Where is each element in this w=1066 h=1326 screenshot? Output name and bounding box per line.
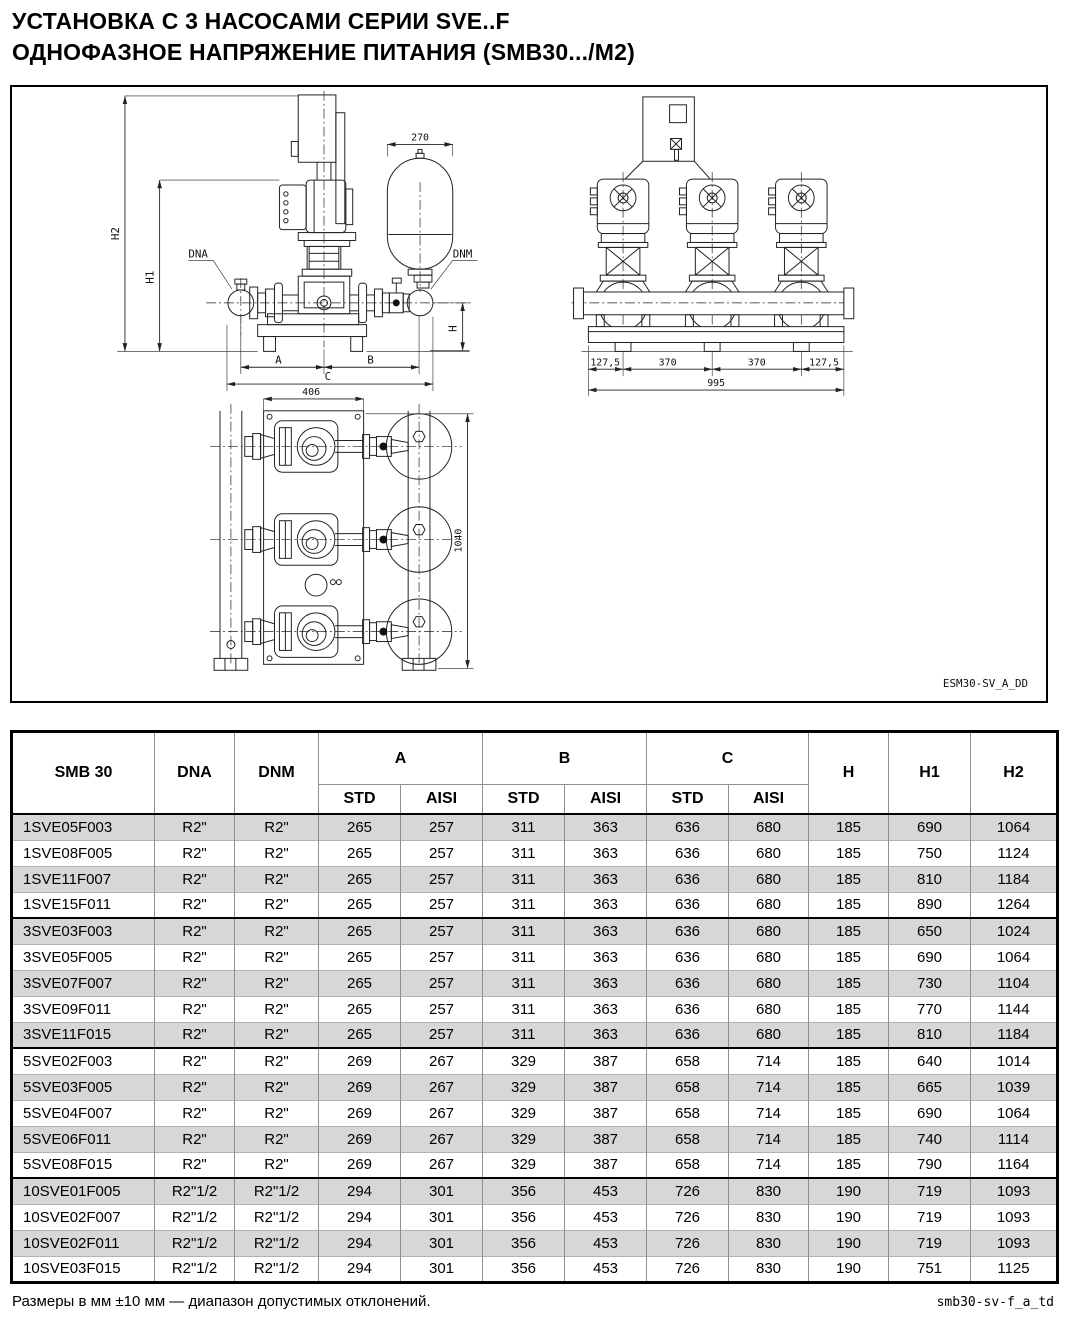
spec-cell: R2" bbox=[155, 918, 235, 944]
spec-cell: 257 bbox=[401, 996, 483, 1022]
spec-cell: R2" bbox=[235, 1126, 319, 1152]
spec-cell: 363 bbox=[565, 892, 647, 918]
spec-cell: R2"1/2 bbox=[155, 1178, 235, 1204]
col-header-h: H bbox=[809, 732, 889, 815]
spec-cell: 257 bbox=[401, 944, 483, 970]
spec-cell: 257 bbox=[401, 840, 483, 866]
page-title-line2: ОДНОФАЗНОЕ НАПРЯЖЕНИЕ ПИТАНИЯ (SMB30.../… bbox=[12, 37, 635, 68]
spec-cell: 387 bbox=[565, 1074, 647, 1100]
spec-cell: 680 bbox=[729, 892, 809, 918]
spec-cell: 658 bbox=[647, 1048, 729, 1074]
spec-cell: 185 bbox=[809, 1126, 889, 1152]
spec-cell: 1125 bbox=[971, 1256, 1058, 1282]
model-cell: 3SVE05F005 bbox=[12, 944, 155, 970]
dim-pitch1: 370 bbox=[659, 357, 677, 368]
spec-cell: 363 bbox=[565, 944, 647, 970]
spec-cell: 680 bbox=[729, 814, 809, 840]
control-box bbox=[291, 95, 344, 224]
spec-cell: 453 bbox=[565, 1178, 647, 1204]
pump-plan-2 bbox=[210, 514, 462, 565]
spec-cell: 680 bbox=[729, 918, 809, 944]
spec-cell: R2" bbox=[155, 892, 235, 918]
spec-cell: 1164 bbox=[971, 1152, 1058, 1178]
spec-cell: R2" bbox=[235, 840, 319, 866]
spec-cell: 329 bbox=[483, 1074, 565, 1100]
col-header-c-std: STD bbox=[647, 785, 729, 815]
spec-cell: 329 bbox=[483, 1126, 565, 1152]
spec-cell: 265 bbox=[319, 918, 401, 944]
dim-a-text: A bbox=[275, 353, 282, 366]
spec-cell: 294 bbox=[319, 1230, 401, 1256]
spec-cell: 329 bbox=[483, 1100, 565, 1126]
spec-cell: 269 bbox=[319, 1048, 401, 1074]
dim-c-text: C bbox=[325, 370, 332, 383]
spec-cell: 185 bbox=[809, 840, 889, 866]
spec-cell: 453 bbox=[565, 1230, 647, 1256]
spec-cell: R2"1/2 bbox=[235, 1204, 319, 1230]
spec-cell: 636 bbox=[647, 866, 729, 892]
col-header-c: C bbox=[647, 732, 809, 785]
spec-cell: R2" bbox=[235, 1152, 319, 1178]
spec-cell: 265 bbox=[319, 944, 401, 970]
table-row: 5SVE04F007R2"R2"269267329387658714185690… bbox=[12, 1100, 1058, 1126]
dim-side-total: 995 bbox=[588, 378, 843, 390]
table-row: 10SVE02F011R2"1/2R2"1/229430135645372683… bbox=[12, 1230, 1058, 1256]
spec-cell: R2" bbox=[155, 866, 235, 892]
spec-cell: 257 bbox=[401, 918, 483, 944]
spec-cell: 311 bbox=[483, 1022, 565, 1048]
spec-cell: 658 bbox=[647, 1100, 729, 1126]
dim-406: 406 bbox=[302, 387, 320, 398]
spec-cell: 190 bbox=[809, 1204, 889, 1230]
spec-cell: 265 bbox=[319, 866, 401, 892]
spec-cell: 265 bbox=[319, 892, 401, 918]
table-row: 3SVE11F015R2"R2"265257311363636680185810… bbox=[12, 1022, 1058, 1048]
table-row: 5SVE08F015R2"R2"269267329387658714185790… bbox=[12, 1152, 1058, 1178]
spec-cell: 1264 bbox=[971, 892, 1058, 918]
spec-cell: 269 bbox=[319, 1074, 401, 1100]
spec-cell: R2" bbox=[235, 918, 319, 944]
spec-cell: 185 bbox=[809, 1022, 889, 1048]
spec-cell: 267 bbox=[401, 1126, 483, 1152]
spec-cell: R2" bbox=[155, 1126, 235, 1152]
model-cell: 10SVE02F011 bbox=[12, 1230, 155, 1256]
dim-h: H bbox=[430, 303, 470, 351]
spec-cell: 680 bbox=[729, 866, 809, 892]
spec-cell: 726 bbox=[647, 1204, 729, 1230]
col-header-dnm: DNM bbox=[235, 732, 319, 815]
spec-cell: 363 bbox=[565, 840, 647, 866]
datasheet-page: УСТАНОВКА С 3 НАСОСАМИ СЕРИИ SVE..F ОДНО… bbox=[0, 0, 1066, 1326]
col-header-dna: DNA bbox=[155, 732, 235, 815]
col-header-b: B bbox=[483, 732, 647, 785]
spec-cell: 269 bbox=[319, 1152, 401, 1178]
page-title: УСТАНОВКА С 3 НАСОСАМИ СЕРИИ SVE..F ОДНО… bbox=[12, 6, 635, 68]
col-header-a-std: STD bbox=[319, 785, 401, 815]
table-row: 3SVE07F007R2"R2"265257311363636680185730… bbox=[12, 970, 1058, 996]
spec-cell: R2" bbox=[155, 970, 235, 996]
spec-cell: 1184 bbox=[971, 866, 1058, 892]
table-row: 5SVE03F005R2"R2"269267329387658714185665… bbox=[12, 1074, 1058, 1100]
spec-cell: 690 bbox=[889, 1100, 971, 1126]
spec-cell: 265 bbox=[319, 996, 401, 1022]
spec-cell: R2" bbox=[235, 1100, 319, 1126]
spec-cell: R2" bbox=[155, 840, 235, 866]
spec-cell: 1104 bbox=[971, 970, 1058, 996]
spec-cell: 751 bbox=[889, 1256, 971, 1282]
spec-cell: 301 bbox=[401, 1178, 483, 1204]
spec-cell: 1093 bbox=[971, 1230, 1058, 1256]
spec-cell: 311 bbox=[483, 866, 565, 892]
model-cell: 10SVE01F005 bbox=[12, 1178, 155, 1204]
model-cell: 1SVE15F011 bbox=[12, 892, 155, 918]
spec-cell: 1064 bbox=[971, 944, 1058, 970]
spec-cell: 636 bbox=[647, 918, 729, 944]
spec-cell: 265 bbox=[319, 814, 401, 840]
spec-cell: 294 bbox=[319, 1178, 401, 1204]
spec-cell: 830 bbox=[729, 1204, 809, 1230]
spec-cell: 185 bbox=[809, 1074, 889, 1100]
spec-cell: 830 bbox=[729, 1256, 809, 1282]
table-row: 3SVE03F003R2"R2"265257311363636680185650… bbox=[12, 918, 1058, 944]
spec-cell: 387 bbox=[565, 1048, 647, 1074]
spec-cell: 356 bbox=[483, 1204, 565, 1230]
spec-cell: 1093 bbox=[971, 1204, 1058, 1230]
spec-cell: 267 bbox=[401, 1152, 483, 1178]
spec-cell: R2"1/2 bbox=[235, 1256, 319, 1282]
spec-cell: R2" bbox=[235, 996, 319, 1022]
spec-cell: 363 bbox=[565, 918, 647, 944]
spec-cell: 185 bbox=[809, 944, 889, 970]
spec-cell: 1064 bbox=[971, 1100, 1058, 1126]
spec-cell: 265 bbox=[319, 840, 401, 866]
spec-cell: 185 bbox=[809, 814, 889, 840]
spec-cell: 190 bbox=[809, 1256, 889, 1282]
spec-cell: 363 bbox=[565, 814, 647, 840]
pump-column bbox=[298, 233, 355, 277]
sheet-code: smb30-sv-f_a_td bbox=[937, 1295, 1054, 1310]
spec-cell: 267 bbox=[401, 1048, 483, 1074]
spec-cell: 680 bbox=[729, 1022, 809, 1048]
spec-cell: 267 bbox=[401, 1074, 483, 1100]
spec-cell: 387 bbox=[565, 1100, 647, 1126]
spec-cell: 185 bbox=[809, 1152, 889, 1178]
spec-cell: 265 bbox=[319, 970, 401, 996]
model-cell: 1SVE08F005 bbox=[12, 840, 155, 866]
spec-cell: R2" bbox=[235, 892, 319, 918]
dnm-text: DNM bbox=[453, 247, 473, 260]
spec-cell: 1039 bbox=[971, 1074, 1058, 1100]
spec-cell: 269 bbox=[319, 1126, 401, 1152]
spec-cell: R2" bbox=[155, 944, 235, 970]
spec-cell: 726 bbox=[647, 1230, 729, 1256]
spec-cell: 714 bbox=[729, 1152, 809, 1178]
col-header-c-aisi: AISI bbox=[729, 785, 809, 815]
spec-cell: R2" bbox=[235, 1022, 319, 1048]
spec-cell: 810 bbox=[889, 1022, 971, 1048]
spec-cell: 1064 bbox=[971, 814, 1058, 840]
dim-995: 995 bbox=[707, 378, 725, 389]
spec-cell: 810 bbox=[889, 866, 971, 892]
front-view: DNA bbox=[109, 91, 477, 391]
spec-cell: 301 bbox=[401, 1256, 483, 1282]
table-row: 3SVE05F005R2"R2"265257311363636680185690… bbox=[12, 944, 1058, 970]
side-view: 127,5 370 370 127,5 995 bbox=[572, 97, 856, 396]
spec-cell: 790 bbox=[889, 1152, 971, 1178]
table-row: 1SVE15F011R2"R2"265257311363636680185890… bbox=[12, 892, 1058, 918]
spec-cell: 363 bbox=[565, 1022, 647, 1048]
spec-cell: 356 bbox=[483, 1230, 565, 1256]
model-cell: 3SVE07F007 bbox=[12, 970, 155, 996]
spec-cell: 185 bbox=[809, 892, 889, 918]
dim-edge-right: 127,5 bbox=[809, 357, 839, 368]
spec-cell: 363 bbox=[565, 970, 647, 996]
spec-cell: R2"1/2 bbox=[235, 1230, 319, 1256]
col-header-b-std: STD bbox=[483, 785, 565, 815]
model-cell: 1SVE05F003 bbox=[12, 814, 155, 840]
spec-cell: 363 bbox=[565, 866, 647, 892]
spec-cell: 680 bbox=[729, 840, 809, 866]
spec-cell: 387 bbox=[565, 1152, 647, 1178]
dim-1040: 1040 bbox=[454, 529, 465, 553]
page-footer: Размеры в мм ±10 мм — диапазон допустимы… bbox=[12, 1293, 1054, 1310]
model-cell: 1SVE11F007 bbox=[12, 866, 155, 892]
suction-manifold-plan bbox=[214, 404, 248, 670]
pump-plan-3 bbox=[210, 606, 462, 657]
spec-cell: R2"1/2 bbox=[155, 1204, 235, 1230]
table-row: 1SVE08F005R2"R2"265257311363636680185750… bbox=[12, 840, 1058, 866]
spec-cell: 890 bbox=[889, 892, 971, 918]
spec-cell: 640 bbox=[889, 1048, 971, 1074]
col-header-b-aisi: AISI bbox=[565, 785, 647, 815]
dim-h1-text: H1 bbox=[144, 271, 157, 284]
spec-cell: 294 bbox=[319, 1204, 401, 1230]
spec-cell: 740 bbox=[889, 1126, 971, 1152]
spec-cell: R2"1/2 bbox=[155, 1256, 235, 1282]
dim-plan-width: 406 bbox=[264, 387, 364, 411]
spec-cell: R2" bbox=[235, 866, 319, 892]
dim-pitch2: 370 bbox=[748, 357, 766, 368]
spec-cell: 680 bbox=[729, 970, 809, 996]
spec-cell: 269 bbox=[319, 1100, 401, 1126]
spec-cell: 1014 bbox=[971, 1048, 1058, 1074]
table-row: 10SVE02F007R2"1/2R2"1/229430135645372683… bbox=[12, 1204, 1058, 1230]
spec-cell: 636 bbox=[647, 1022, 729, 1048]
spec-cell: 329 bbox=[483, 1048, 565, 1074]
suction-manifold-side bbox=[572, 288, 856, 319]
spec-cell: R2" bbox=[155, 1048, 235, 1074]
spec-cell: 311 bbox=[483, 892, 565, 918]
pump-plan-1 bbox=[210, 421, 462, 472]
spec-cell: 770 bbox=[889, 996, 971, 1022]
spec-cell: R2" bbox=[155, 1074, 235, 1100]
spec-cell: 1024 bbox=[971, 918, 1058, 944]
col-header-a-aisi: AISI bbox=[401, 785, 483, 815]
spec-cell: 714 bbox=[729, 1074, 809, 1100]
spec-cell: 658 bbox=[647, 1074, 729, 1100]
base-frame-side bbox=[581, 315, 852, 352]
spec-cell: 311 bbox=[483, 996, 565, 1022]
dna-text: DNA bbox=[188, 247, 208, 260]
dim-h2: H2 bbox=[109, 96, 298, 351]
spec-cell: 830 bbox=[729, 1178, 809, 1204]
spec-cell: 636 bbox=[647, 996, 729, 1022]
spec-cell: 719 bbox=[889, 1230, 971, 1256]
model-cell: 3SVE11F015 bbox=[12, 1022, 155, 1048]
dnm-label: DNM bbox=[431, 247, 478, 289]
spec-cell: 356 bbox=[483, 1256, 565, 1282]
frame-hole bbox=[305, 574, 327, 596]
base-frame bbox=[117, 314, 470, 352]
model-cell: 3SVE09F011 bbox=[12, 996, 155, 1022]
spec-cell: 257 bbox=[401, 814, 483, 840]
spec-cell: 267 bbox=[401, 1100, 483, 1126]
model-cell: 10SVE03F015 bbox=[12, 1256, 155, 1282]
dim-h-text: H bbox=[447, 325, 460, 332]
spec-cell: 265 bbox=[319, 1022, 401, 1048]
dim-h2-text: H2 bbox=[109, 227, 122, 240]
spec-cell: 719 bbox=[889, 1204, 971, 1230]
spec-table-body: 1SVE05F003R2"R2"265257311363636680185690… bbox=[12, 814, 1058, 1282]
model-cell: 5SVE04F007 bbox=[12, 1100, 155, 1126]
spec-cell: 311 bbox=[483, 970, 565, 996]
spec-cell: 329 bbox=[483, 1152, 565, 1178]
spec-cell: 730 bbox=[889, 970, 971, 996]
panel-window bbox=[670, 105, 687, 123]
table-row: 5SVE06F011R2"R2"269267329387658714185740… bbox=[12, 1126, 1058, 1152]
spec-cell: 257 bbox=[401, 970, 483, 996]
spec-cell: 636 bbox=[647, 814, 729, 840]
spec-cell: R2" bbox=[155, 1152, 235, 1178]
spec-cell: 311 bbox=[483, 918, 565, 944]
col-header-h2: H2 bbox=[971, 732, 1058, 815]
page-title-line1: УСТАНОВКА С 3 НАСОСАМИ СЕРИИ SVE..F bbox=[12, 6, 635, 37]
spec-cell: 719 bbox=[889, 1178, 971, 1204]
model-cell: 5SVE08F015 bbox=[12, 1152, 155, 1178]
table-row: 10SVE01F005R2"1/2R2"1/229430135645372683… bbox=[12, 1178, 1058, 1204]
model-cell: 5SVE03F005 bbox=[12, 1074, 155, 1100]
spec-cell: 1144 bbox=[971, 996, 1058, 1022]
spec-cell: 301 bbox=[401, 1230, 483, 1256]
dim-b-text: B bbox=[367, 353, 374, 366]
table-row: 5SVE02F003R2"R2"269267329387658714185640… bbox=[12, 1048, 1058, 1074]
spec-cell: 356 bbox=[483, 1178, 565, 1204]
spec-cell: 185 bbox=[809, 996, 889, 1022]
spec-cell: 1093 bbox=[971, 1178, 1058, 1204]
tolerance-note: Размеры в мм ±10 мм — диапазон допустимы… bbox=[12, 1293, 431, 1310]
col-header-a: A bbox=[319, 732, 483, 785]
discharge-manifold-plan bbox=[402, 404, 436, 670]
spec-cell: 257 bbox=[401, 866, 483, 892]
spec-cell: 1184 bbox=[971, 1022, 1058, 1048]
spec-cell: 185 bbox=[809, 918, 889, 944]
spec-cell: R2"1/2 bbox=[235, 1178, 319, 1204]
spec-cell: R2"1/2 bbox=[155, 1230, 235, 1256]
model-cell: 10SVE02F007 bbox=[12, 1204, 155, 1230]
spec-cell: 650 bbox=[889, 918, 971, 944]
model-cell: 5SVE02F003 bbox=[12, 1048, 155, 1074]
spec-cell: 294 bbox=[319, 1256, 401, 1282]
table-row: 3SVE09F011R2"R2"265257311363636680185770… bbox=[12, 996, 1058, 1022]
spec-cell: 714 bbox=[729, 1100, 809, 1126]
spec-cell: 311 bbox=[483, 944, 565, 970]
spec-cell: 311 bbox=[483, 814, 565, 840]
spec-cell: 301 bbox=[401, 1204, 483, 1230]
spec-cell: 185 bbox=[809, 1100, 889, 1126]
spec-cell: 453 bbox=[565, 1204, 647, 1230]
spec-cell: 726 bbox=[647, 1256, 729, 1282]
spec-cell: 714 bbox=[729, 1048, 809, 1074]
dim-tank-width: 270 bbox=[387, 132, 452, 156]
spec-cell: 680 bbox=[729, 996, 809, 1022]
spec-cell: 690 bbox=[889, 944, 971, 970]
spec-cell: R2" bbox=[155, 996, 235, 1022]
spec-cell: R2" bbox=[235, 970, 319, 996]
col-header-h1: H1 bbox=[889, 732, 971, 815]
dna-label: DNA bbox=[188, 247, 232, 289]
col-header-model: SMB 30 bbox=[12, 732, 155, 815]
spec-cell: 680 bbox=[729, 944, 809, 970]
spec-table: SMB 30 DNA DNM A B C H H1 H2 STD AISI ST… bbox=[10, 730, 1059, 1284]
spec-cell: 311 bbox=[483, 840, 565, 866]
dim-h1: H1 bbox=[144, 180, 280, 351]
spec-cell: 714 bbox=[729, 1126, 809, 1152]
table-row: 10SVE03F015R2"1/2R2"1/229430135645372683… bbox=[12, 1256, 1058, 1282]
spec-cell: 830 bbox=[729, 1230, 809, 1256]
spec-cell: 636 bbox=[647, 944, 729, 970]
dim-edge-left: 127,5 bbox=[590, 357, 620, 368]
spec-cell: 185 bbox=[809, 970, 889, 996]
table-row: 1SVE11F007R2"R2"265257311363636680185810… bbox=[12, 866, 1058, 892]
spec-cell: 636 bbox=[647, 892, 729, 918]
table-row: 1SVE05F003R2"R2"265257311363636680185690… bbox=[12, 814, 1058, 840]
spec-cell: 363 bbox=[565, 996, 647, 1022]
spec-cell: R2" bbox=[235, 944, 319, 970]
spec-cell: 1124 bbox=[971, 840, 1058, 866]
spec-cell: 453 bbox=[565, 1256, 647, 1282]
model-cell: 3SVE03F003 bbox=[12, 918, 155, 944]
spec-cell: 257 bbox=[401, 1022, 483, 1048]
spec-cell: 636 bbox=[647, 840, 729, 866]
plan-view: 406 bbox=[210, 387, 473, 670]
spec-cell: R2" bbox=[235, 814, 319, 840]
spec-cell: 185 bbox=[809, 866, 889, 892]
spec-cell: 1114 bbox=[971, 1126, 1058, 1152]
drawing-svg: DNA bbox=[12, 87, 1042, 697]
spec-cell: 665 bbox=[889, 1074, 971, 1100]
spec-cell: R2" bbox=[235, 1048, 319, 1074]
drawing-code: ESM30-SV_A_DD bbox=[943, 677, 1028, 690]
spec-cell: 185 bbox=[809, 1048, 889, 1074]
spec-cell: 658 bbox=[647, 1152, 729, 1178]
spec-cell: R2" bbox=[155, 1022, 235, 1048]
model-cell: 5SVE06F011 bbox=[12, 1126, 155, 1152]
spec-cell: 658 bbox=[647, 1126, 729, 1152]
spec-cell: R2" bbox=[235, 1074, 319, 1100]
spec-cell: 257 bbox=[401, 892, 483, 918]
spec-cell: 636 bbox=[647, 970, 729, 996]
dim-270: 270 bbox=[411, 132, 429, 143]
spec-cell: 190 bbox=[809, 1178, 889, 1204]
technical-drawing: DNA bbox=[10, 85, 1048, 703]
pump-motor bbox=[279, 180, 352, 232]
spec-cell: 750 bbox=[889, 840, 971, 866]
spec-cell: R2" bbox=[155, 1100, 235, 1126]
spec-cell: 387 bbox=[565, 1126, 647, 1152]
spec-cell: 190 bbox=[809, 1230, 889, 1256]
spec-cell: R2" bbox=[155, 814, 235, 840]
spec-cell: 690 bbox=[889, 814, 971, 840]
